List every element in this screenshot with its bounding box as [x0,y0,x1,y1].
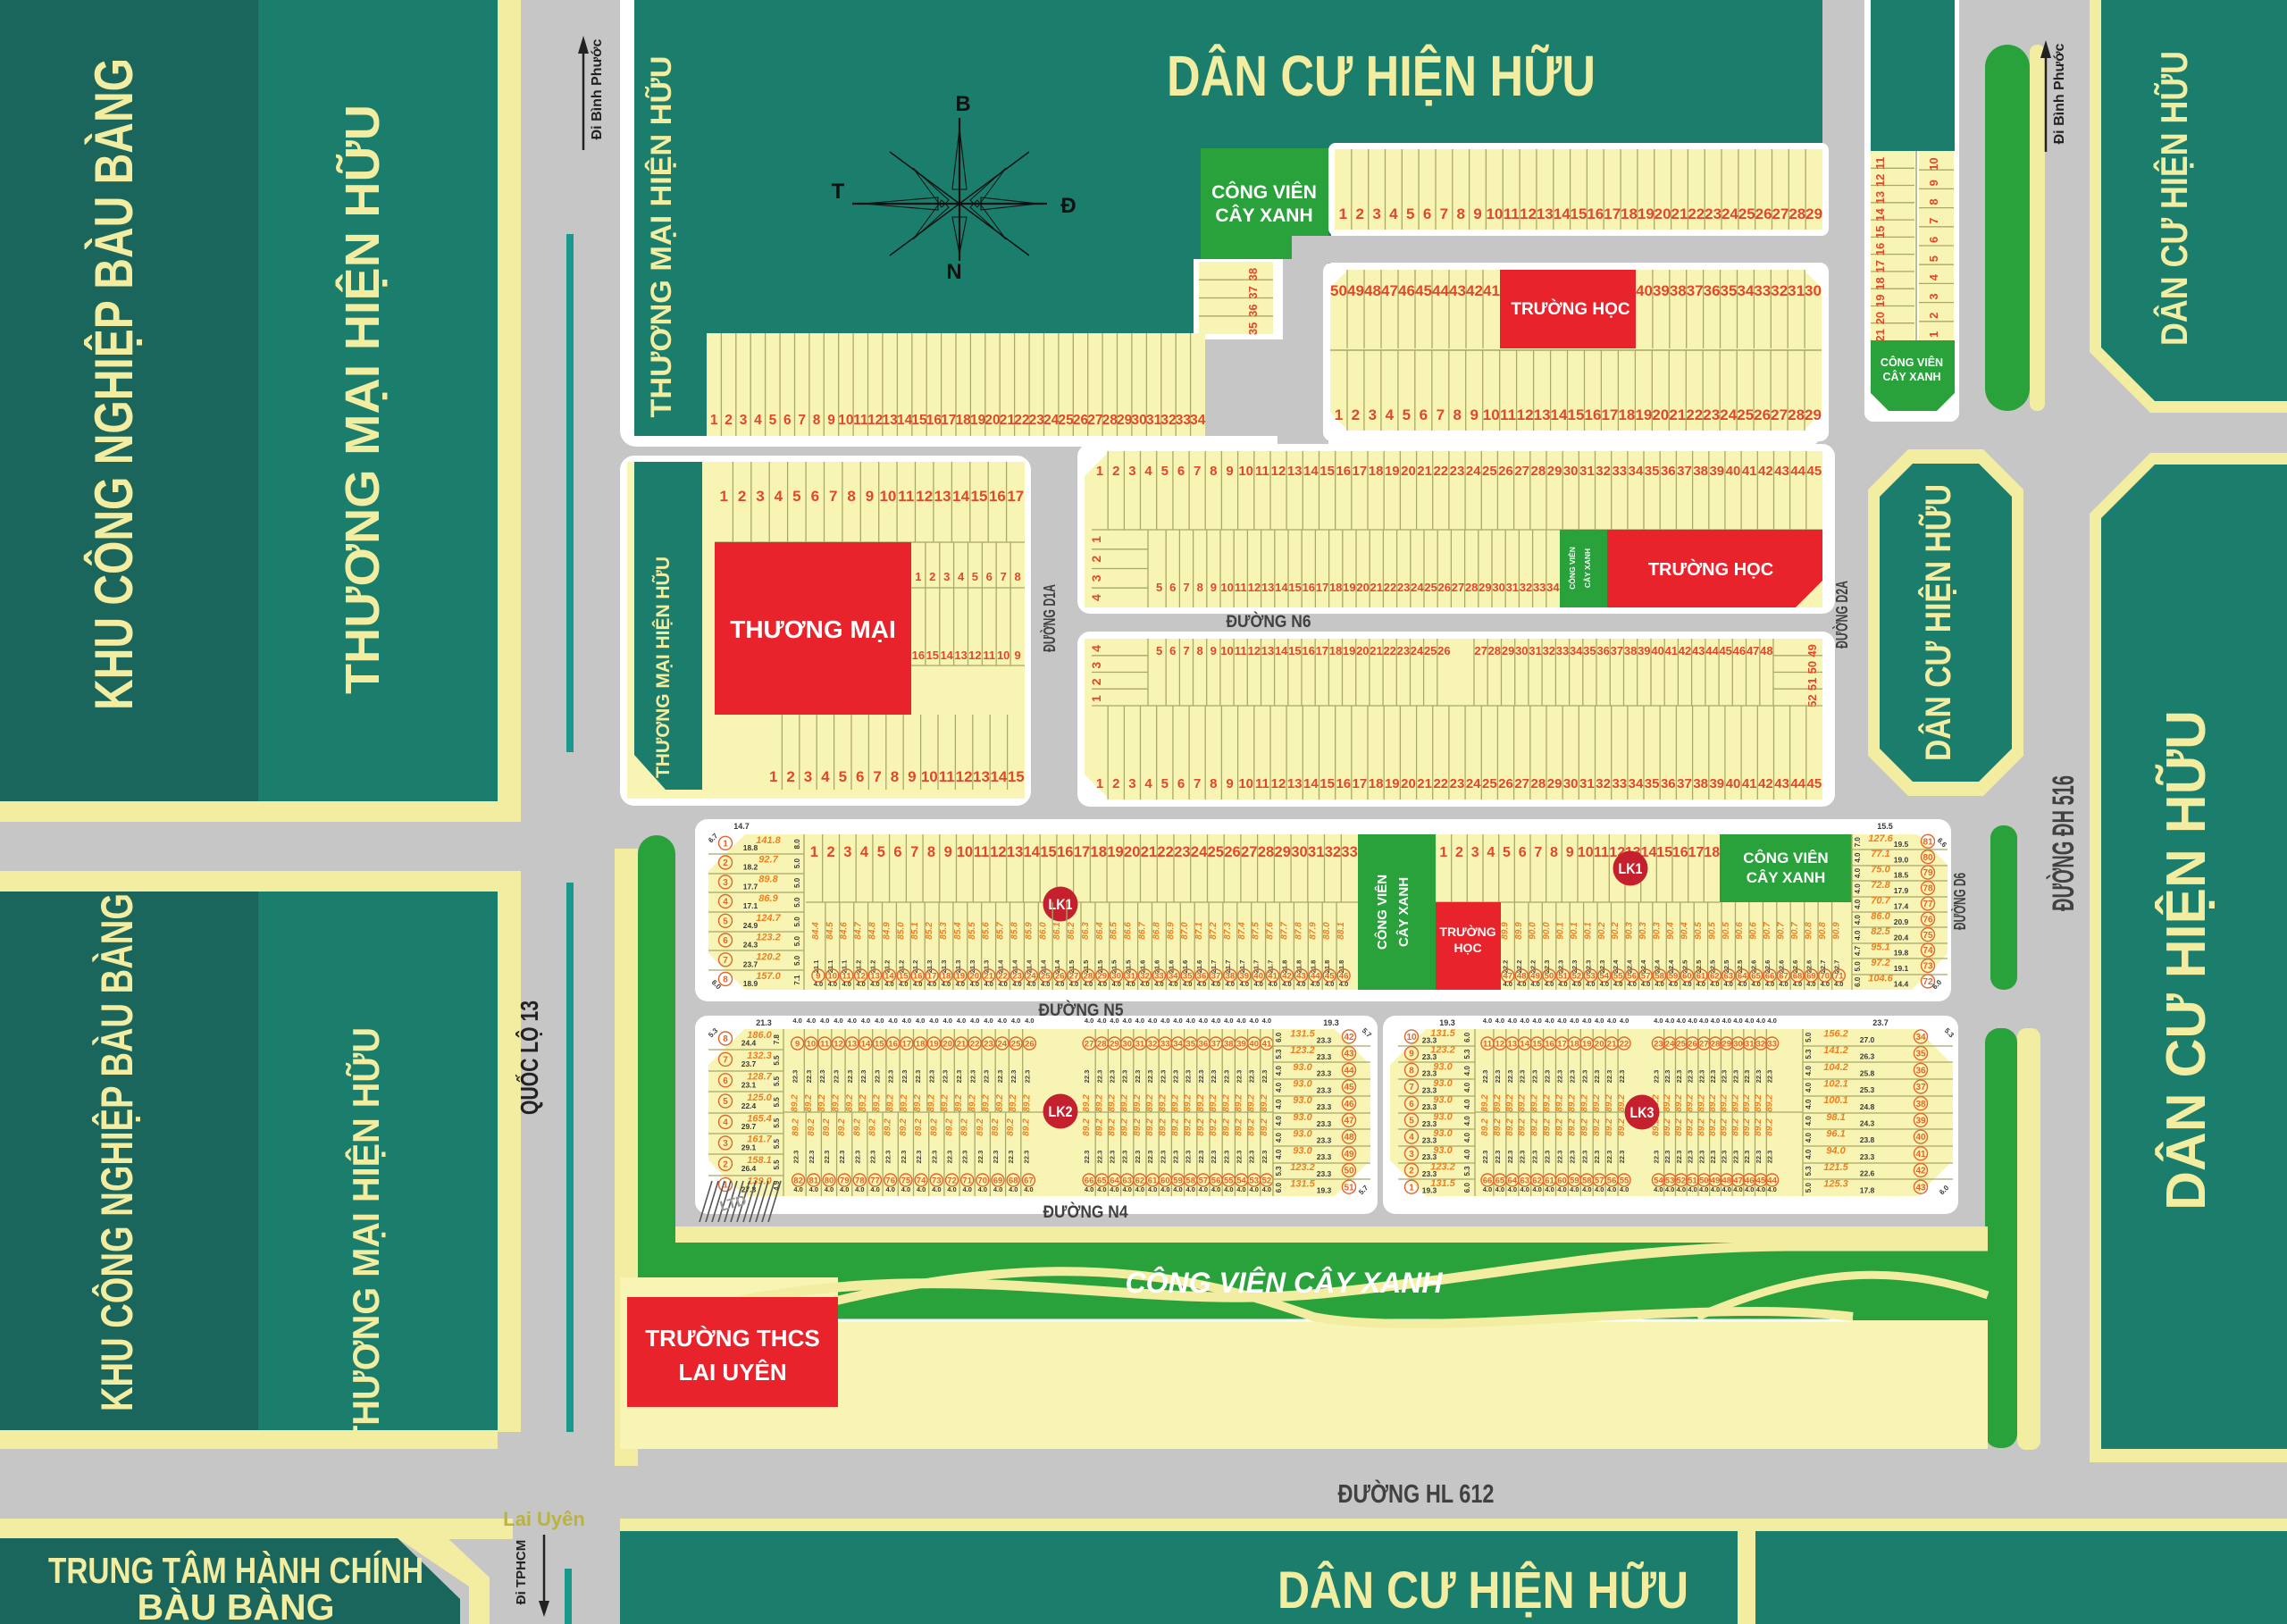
svg-text:89.2: 89.2 [1247,1094,1257,1112]
svg-text:22.3: 22.3 [1605,1151,1613,1164]
svg-text:10: 10 [1220,644,1233,657]
svg-text:5.0: 5.0 [793,917,801,927]
svg-text:4.0: 4.0 [1135,1017,1144,1025]
svg-text:17: 17 [1007,488,1024,505]
svg-text:22.3: 22.3 [1109,1070,1117,1084]
svg-text:30: 30 [1291,844,1307,860]
svg-text:23.3: 23.3 [1422,1102,1437,1111]
svg-text:22.3: 22.3 [1697,1070,1705,1084]
svg-text:12: 12 [1520,205,1537,222]
svg-text:29: 29 [1722,1039,1731,1049]
svg-text:4.0: 4.0 [1495,1185,1504,1193]
svg-text:89.2: 89.2 [1082,1094,1092,1112]
svg-text:3: 3 [1471,845,1479,860]
svg-text:24.3: 24.3 [1860,1118,1875,1127]
svg-text:90.2: 90.2 [1611,922,1621,940]
svg-text:4.0: 4.0 [956,980,965,988]
svg-text:4.0: 4.0 [1226,980,1235,988]
svg-text:9: 9 [944,844,952,860]
svg-text:58: 58 [1185,1176,1195,1185]
svg-text:2: 2 [786,768,794,785]
svg-text:4.0: 4.0 [1595,1185,1604,1193]
svg-text:49: 49 [1711,1176,1721,1185]
svg-text:10: 10 [807,1039,817,1049]
svg-text:23.3: 23.3 [1317,1085,1332,1094]
svg-text:22.3: 22.3 [1697,1151,1705,1164]
svg-text:47: 47 [1733,1176,1743,1185]
svg-text:26: 26 [1755,205,1772,222]
svg-text:47: 47 [1344,1117,1354,1126]
svg-text:4.0: 4.0 [1173,1185,1182,1193]
svg-text:52: 52 [1677,1176,1687,1185]
svg-text:58: 58 [1582,1176,1592,1185]
svg-text:22.3: 22.3 [1709,1070,1717,1084]
svg-text:14: 14 [1873,207,1887,221]
svg-text:22.3: 22.3 [1755,1151,1763,1164]
svg-text:4.0: 4.0 [1463,1082,1471,1092]
svg-text:84.6: 84.6 [840,922,850,940]
svg-text:6: 6 [1169,644,1176,657]
svg-text:18: 18 [1704,845,1720,860]
svg-text:11: 11 [1504,205,1520,222]
svg-text:37: 37 [1211,1039,1221,1049]
svg-text:5: 5 [1156,581,1162,594]
svg-text:28: 28 [1258,844,1274,860]
svg-text:89.2: 89.2 [960,1118,970,1136]
svg-text:4.0: 4.0 [1682,980,1691,988]
svg-text:2: 2 [1112,464,1119,479]
svg-text:4.0: 4.0 [1545,980,1554,988]
svg-text:4.0: 4.0 [1854,915,1862,925]
svg-text:4.0: 4.0 [984,1017,993,1025]
svg-text:21: 21 [1671,205,1688,222]
svg-text:3: 3 [723,1139,728,1149]
svg-text:22.3: 22.3 [1185,1070,1193,1084]
svg-text:16: 16 [1585,406,1602,423]
svg-text:4.0: 4.0 [1722,1185,1731,1193]
svg-text:29: 29 [1275,844,1291,860]
svg-text:70: 70 [978,1176,988,1185]
svg-text:24.3: 24.3 [743,941,758,950]
svg-text:4.0: 4.0 [1262,1017,1271,1025]
svg-text:89.2: 89.2 [884,1118,893,1136]
svg-text:15.5: 15.5 [1877,822,1893,831]
svg-text:32: 32 [1596,464,1611,479]
svg-text:6: 6 [723,1076,728,1086]
svg-text:4.0: 4.0 [1160,1185,1169,1193]
svg-text:64: 64 [1508,1176,1518,1185]
svg-text:4.0: 4.0 [1557,1017,1566,1025]
svg-text:2: 2 [1089,556,1103,563]
svg-text:22.3: 22.3 [1007,1151,1015,1164]
svg-text:86.0: 86.0 [1038,922,1048,940]
svg-text:4.0: 4.0 [842,980,851,988]
svg-text:4.0: 4.0 [1122,1017,1131,1025]
svg-text:4.0: 4.0 [1026,980,1035,988]
svg-text:4.0: 4.0 [942,980,951,988]
svg-text:32: 32 [1520,581,1532,594]
svg-text:4.0: 4.0 [1532,1017,1541,1025]
svg-text:31: 31 [1506,581,1519,594]
svg-text:4.0: 4.0 [1545,1017,1554,1025]
svg-text:19.8: 19.8 [1894,949,1909,958]
svg-text:44: 44 [1344,1066,1354,1076]
svg-text:4.0: 4.0 [1009,1185,1018,1193]
svg-text:48: 48 [1760,644,1772,657]
svg-text:CÂY XANH: CÂY XANH [1747,869,1825,886]
svg-text:4.0: 4.0 [1805,1132,1813,1143]
svg-text:121.5: 121.5 [1823,1162,1848,1173]
svg-text:4.0: 4.0 [1463,1132,1471,1143]
svg-text:DÂN CƯ HIỆN HỮU: DÂN CƯ HIỆN HỮU [1917,484,1958,761]
svg-text:45: 45 [1344,1083,1354,1092]
svg-text:31: 31 [1146,413,1162,428]
svg-text:22.3: 22.3 [1083,1070,1091,1084]
svg-text:3: 3 [740,413,748,428]
svg-text:125.3: 125.3 [1823,1179,1848,1190]
svg-text:22.3: 22.3 [915,1151,923,1164]
svg-text:20: 20 [1401,464,1416,479]
svg-text:4.0: 4.0 [1854,899,1862,909]
svg-text:79: 79 [840,1176,850,1185]
svg-text:4.0: 4.0 [1699,1185,1708,1193]
svg-text:23.3: 23.3 [1317,1169,1332,1178]
svg-text:39: 39 [1638,644,1650,657]
svg-text:123.2: 123.2 [1290,1162,1315,1173]
svg-text:77.1: 77.1 [1871,849,1889,859]
svg-text:7: 7 [910,844,918,860]
svg-text:19.3: 19.3 [1317,1186,1332,1195]
svg-text:49: 49 [1805,644,1819,657]
svg-text:22.3: 22.3 [1261,1070,1269,1084]
svg-text:5.0: 5.0 [793,897,801,908]
svg-text:21.3: 21.3 [756,1018,772,1027]
svg-text:37: 37 [1915,1083,1926,1092]
svg-text:6: 6 [723,936,728,946]
svg-text:4.0: 4.0 [1806,980,1815,988]
svg-text:22.3: 22.3 [1580,1151,1588,1164]
svg-text:TRƯỜNG HỌC: TRƯỜNG HỌC [1511,299,1630,319]
svg-text:89.2: 89.2 [1493,1094,1503,1112]
svg-text:4.0: 4.0 [807,1017,816,1025]
svg-text:29: 29 [1110,1039,1119,1049]
svg-text:89.2: 89.2 [941,1094,951,1112]
svg-text:24: 24 [1722,205,1738,222]
svg-text:ĐƯỜNG ĐH 516: ĐƯỜNG ĐH 516 [2047,775,2081,911]
svg-text:4.0: 4.0 [1211,980,1220,988]
svg-text:34: 34 [1629,464,1644,479]
svg-text:18: 18 [1570,1039,1579,1049]
svg-text:6: 6 [783,413,792,428]
svg-text:57: 57 [1199,1176,1209,1185]
svg-text:6: 6 [811,488,819,505]
svg-text:11: 11 [1483,1039,1493,1049]
svg-text:3: 3 [756,488,764,505]
svg-text:89.2: 89.2 [859,1094,868,1112]
svg-text:5.0: 5.0 [1805,1032,1813,1042]
svg-text:2: 2 [1112,776,1119,791]
svg-text:100.1: 100.1 [1823,1095,1848,1106]
svg-text:89.2: 89.2 [1221,1118,1231,1136]
svg-text:14: 14 [1303,464,1319,479]
svg-text:2: 2 [827,844,835,860]
svg-text:6: 6 [856,768,864,785]
svg-text:17.8: 17.8 [1860,1185,1875,1194]
svg-text:5.0: 5.0 [1805,1183,1813,1193]
svg-text:1: 1 [915,570,921,583]
svg-text:22.3: 22.3 [1568,1151,1576,1164]
svg-text:89.2: 89.2 [1530,1118,1540,1136]
svg-text:4: 4 [860,844,869,860]
svg-text:85.2: 85.2 [925,922,934,940]
svg-text:THƯƠNG MẠI HIỆN HỮU: THƯƠNG MẠI HIỆN HỮU [652,557,674,778]
svg-text:4.0: 4.0 [927,980,936,988]
svg-text:13: 13 [973,768,990,785]
svg-text:24: 24 [1466,776,1481,791]
svg-text:9: 9 [827,413,835,428]
svg-text:89.2: 89.2 [792,1118,801,1136]
svg-text:55: 55 [1224,1176,1234,1185]
svg-text:4.0: 4.0 [1311,980,1319,988]
svg-text:4.0: 4.0 [1805,1149,1813,1159]
svg-text:89.2: 89.2 [1120,1118,1130,1136]
svg-text:22.3: 22.3 [1652,1070,1660,1084]
svg-text:86.3: 86.3 [1081,922,1091,940]
svg-text:102.1: 102.1 [1823,1079,1848,1090]
svg-text:22.3: 22.3 [1248,1151,1256,1164]
svg-text:85.4: 85.4 [953,922,963,940]
svg-text:93.0: 93.0 [1293,1145,1312,1156]
svg-text:20: 20 [1356,581,1369,594]
svg-text:22.3: 22.3 [1663,1151,1671,1164]
svg-text:41: 41 [1742,464,1757,479]
svg-text:4.0: 4.0 [1756,1185,1765,1193]
svg-text:6.0: 6.0 [1275,1183,1283,1193]
svg-text:8: 8 [813,413,821,428]
svg-text:4.0: 4.0 [1756,1017,1765,1025]
svg-text:33: 33 [1341,844,1357,860]
svg-text:4.0: 4.0 [962,1185,971,1193]
svg-text:18.8: 18.8 [743,843,758,852]
svg-text:17.7: 17.7 [743,882,758,891]
svg-text:35: 35 [1185,1039,1195,1049]
svg-text:92.7: 92.7 [758,855,778,866]
svg-text:38: 38 [1915,1100,1926,1109]
svg-text:4.0: 4.0 [917,1185,926,1193]
svg-text:23.7: 23.7 [743,959,758,968]
svg-text:3: 3 [1369,406,1377,423]
svg-text:4.0: 4.0 [1097,1017,1106,1025]
svg-text:89.2: 89.2 [1009,1094,1018,1112]
svg-text:35: 35 [1645,776,1660,791]
svg-text:86.7: 86.7 [1138,922,1148,940]
svg-text:23.3: 23.3 [1422,1136,1437,1145]
svg-text:22.3: 22.3 [832,1070,840,1084]
svg-text:9: 9 [1473,205,1481,222]
svg-text:89.2: 89.2 [1133,1094,1143,1112]
svg-text:55: 55 [1620,1176,1629,1185]
svg-text:20: 20 [984,413,1000,428]
svg-text:76: 76 [885,1176,895,1185]
svg-text:22.3: 22.3 [1146,1151,1154,1164]
svg-text:20: 20 [1595,1039,1604,1049]
svg-text:4.0: 4.0 [1793,980,1802,988]
svg-text:4.0: 4.0 [1582,1017,1591,1025]
svg-text:23.3: 23.3 [1317,1069,1332,1078]
svg-text:22.3: 22.3 [927,1070,935,1084]
svg-text:1: 1 [1096,776,1103,791]
svg-text:30: 30 [1492,581,1504,594]
svg-text:4.0: 4.0 [1607,1017,1616,1025]
svg-text:4: 4 [1487,845,1495,860]
svg-text:20: 20 [1124,844,1140,860]
svg-text:4.0: 4.0 [875,1017,884,1025]
svg-text:4.0: 4.0 [1495,1017,1504,1025]
svg-text:90.7: 90.7 [1763,922,1772,940]
svg-text:79: 79 [1923,868,1933,878]
svg-text:10: 10 [1238,464,1253,479]
svg-text:3: 3 [804,768,812,785]
svg-text:4.0: 4.0 [1236,1185,1245,1193]
svg-text:21: 21 [1669,406,1686,423]
svg-text:44: 44 [1790,464,1805,479]
svg-text:2: 2 [1352,406,1360,423]
svg-text:68: 68 [1009,1176,1018,1185]
svg-text:77: 77 [1923,900,1933,909]
svg-text:33: 33 [1612,776,1627,791]
svg-text:40: 40 [1726,464,1741,479]
svg-text:14: 14 [940,649,953,662]
svg-text:6: 6 [1519,845,1527,860]
svg-text:4.0: 4.0 [1677,1185,1686,1193]
svg-text:12: 12 [990,844,1006,860]
svg-text:8: 8 [1210,464,1217,479]
svg-text:7: 7 [1409,1083,1414,1092]
svg-text:17.9: 17.9 [1894,886,1909,895]
svg-text:22: 22 [1384,581,1396,594]
svg-text:4.0: 4.0 [1665,1185,1674,1193]
svg-text:28: 28 [1488,644,1501,657]
svg-text:18: 18 [956,413,972,428]
svg-text:11: 11 [1235,644,1247,657]
svg-text:5.3: 5.3 [1805,1166,1813,1176]
svg-text:84.4: 84.4 [811,922,821,940]
svg-text:18: 18 [1329,581,1342,594]
svg-text:4.0: 4.0 [902,1017,911,1025]
svg-text:75: 75 [901,1176,911,1185]
svg-text:15: 15 [926,649,939,662]
svg-text:30: 30 [1563,464,1579,479]
svg-text:14: 14 [952,488,969,505]
svg-text:22.3: 22.3 [823,1151,831,1164]
svg-text:89.2: 89.2 [1674,1118,1684,1136]
svg-text:86.9: 86.9 [1166,922,1176,940]
svg-text:57: 57 [1595,1176,1604,1185]
svg-text:4.0: 4.0 [1595,1017,1604,1025]
svg-text:22.3: 22.3 [1731,1070,1739,1084]
svg-text:87.1: 87.1 [1194,922,1204,940]
svg-text:78: 78 [1923,884,1933,894]
svg-text:5.3: 5.3 [1275,1166,1283,1176]
svg-text:4.0: 4.0 [840,1185,849,1193]
svg-text:22.3: 22.3 [1494,1070,1502,1084]
svg-text:4.0: 4.0 [1140,980,1149,988]
svg-text:17: 17 [1601,406,1618,423]
svg-text:22.3: 22.3 [1593,1151,1601,1164]
svg-text:42: 42 [1758,776,1773,791]
svg-text:8: 8 [1210,776,1217,791]
svg-text:89.2: 89.2 [1592,1094,1602,1112]
svg-text:12: 12 [1495,1039,1505,1049]
svg-text:26.3: 26.3 [1860,1052,1875,1061]
svg-text:Đi Bình Phước: Đi Bình Phước [590,39,605,140]
svg-text:89.2: 89.2 [1171,1094,1181,1112]
svg-text:90.0: 90.0 [1529,922,1538,940]
svg-text:4.0: 4.0 [1249,1185,1258,1193]
svg-text:22.3: 22.3 [1506,1151,1514,1164]
svg-text:4.0: 4.0 [1711,1017,1720,1025]
svg-text:6.0: 6.0 [1463,1032,1471,1042]
svg-text:6: 6 [1423,205,1431,222]
svg-text:4.0: 4.0 [1148,1185,1157,1193]
svg-text:13: 13 [1873,191,1887,204]
svg-text:22.3: 22.3 [1755,1070,1763,1084]
svg-text:38: 38 [1693,464,1708,479]
svg-text:3: 3 [1089,574,1103,582]
svg-text:89.2: 89.2 [1120,1094,1130,1112]
svg-text:4.0: 4.0 [1688,1017,1696,1025]
svg-text:89.2: 89.2 [1530,1094,1540,1112]
svg-text:4.0: 4.0 [1677,1017,1686,1025]
svg-text:4.0: 4.0 [848,1017,857,1025]
svg-text:2: 2 [725,413,733,428]
svg-text:54: 54 [1654,1176,1663,1185]
svg-text:7: 7 [1440,205,1448,222]
svg-text:89.2: 89.2 [1184,1118,1194,1136]
svg-text:24: 24 [998,1039,1008,1049]
svg-text:86.2: 86.2 [1067,922,1076,940]
svg-text:89.2: 89.2 [1765,1118,1775,1136]
svg-text:89.2: 89.2 [1604,1118,1614,1136]
svg-text:22.3: 22.3 [901,1070,909,1084]
svg-text:4: 4 [1389,205,1398,222]
svg-text:84.9: 84.9 [882,922,892,940]
svg-text:23.3: 23.3 [1317,1052,1332,1061]
svg-text:12: 12 [834,1039,843,1049]
svg-text:11: 11 [1255,464,1269,479]
svg-text:22.3: 22.3 [1248,1070,1256,1084]
svg-text:CÂY XANH: CÂY XANH [1582,548,1592,588]
svg-text:4.0: 4.0 [1069,980,1078,988]
svg-text:10: 10 [1406,1033,1417,1042]
svg-text:89.2: 89.2 [1209,1094,1219,1112]
svg-text:86.8: 86.8 [1152,922,1161,940]
svg-text:22.3: 22.3 [1580,1070,1588,1084]
svg-text:4.0: 4.0 [1620,1185,1629,1193]
svg-text:89.2: 89.2 [1221,1094,1231,1112]
svg-text:76: 76 [1923,915,1933,925]
svg-text:89.2: 89.2 [1145,1118,1155,1136]
svg-text:89.2: 89.2 [1260,1118,1269,1136]
svg-text:20: 20 [942,1039,952,1049]
svg-text:48: 48 [1344,1133,1354,1143]
svg-text:5: 5 [1503,845,1511,860]
svg-text:50: 50 [1344,1167,1354,1176]
svg-text:5: 5 [972,570,978,583]
svg-text:22.3: 22.3 [1261,1151,1269,1164]
svg-text:94.0: 94.0 [1826,1145,1846,1156]
svg-text:63: 63 [1122,1176,1132,1185]
